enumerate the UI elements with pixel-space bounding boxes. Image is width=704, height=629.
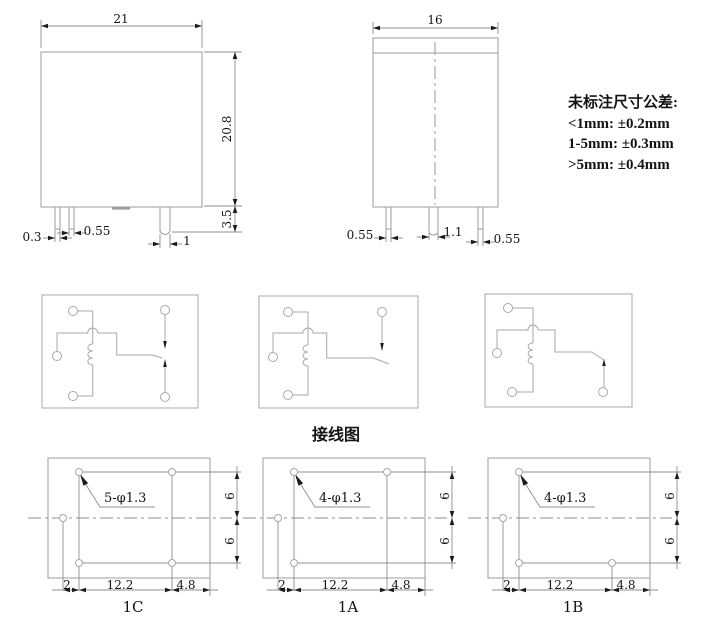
side-dim-6-lower-1b: 6: [663, 531, 677, 551]
side-view-drawing: [373, 22, 498, 246]
mounting-holes: [500, 469, 616, 567]
wiring-diagram-caption: 接线图: [300, 421, 372, 445]
wiring-diagram-1b: [485, 294, 632, 407]
side-dim-6-upper-1c: 6: [223, 486, 237, 506]
leader-arrow: [520, 474, 528, 486]
side-pin-dim-mid-label: 1.1: [437, 225, 469, 239]
pin-terminals: [493, 304, 608, 397]
side-dim-6-upper-1b: 6: [663, 486, 677, 506]
pin-terminals: [53, 306, 170, 402]
armature-wire: [57, 328, 162, 358]
armature-wire: [497, 325, 604, 360]
no-contact: [380, 343, 384, 351]
pcb-layout-1a: [243, 458, 456, 596]
front-width-dim-label: 21: [101, 12, 141, 26]
relay-body-front: [41, 52, 202, 207]
bottom-dim-4.8-1a: 4.8: [382, 578, 420, 592]
tolerance-note: 未标注尺寸公差: <1mm: ±0.2mm 1-5mm: ±0.3mm >5mm…: [568, 93, 704, 175]
bottom-dim-4.8-1c: 4.8: [167, 578, 205, 592]
side-dim-6-lower-1a: 6: [438, 531, 452, 551]
wiring-diagram-1c: [42, 295, 198, 408]
pcb-layout-1c: [28, 458, 241, 596]
front-pin-dim-1-label: 1: [178, 234, 196, 248]
mounting-holes: [60, 469, 176, 567]
layout-label-1b: 1B: [543, 598, 603, 616]
front-view-dimensions: [41, 20, 242, 248]
bottom-dim-4.8-1b: 4.8: [607, 578, 645, 592]
hole-note-1b: 4-φ1.3: [544, 491, 586, 506]
front-pin-dim-0.3-label: 0.3: [16, 230, 48, 244]
bottom-dim-12.2-1a: 12.2: [315, 578, 355, 592]
side-dim-6-lower-1c: 6: [223, 531, 237, 551]
coil-symbol: [293, 345, 309, 395]
leader-arrow: [295, 474, 303, 486]
coil-symbol: [517, 343, 534, 392]
pcb-layout-1b: [468, 458, 681, 596]
bottom-dim-2-1a: 2: [272, 578, 292, 592]
side-pin-dim-left-label: 0.55: [341, 228, 379, 242]
bottom-dim-12.2-1c: 12.2: [100, 578, 140, 592]
tolerance-rule: 1-5mm: ±0.3mm: [568, 134, 704, 155]
front-view-drawing: [41, 20, 242, 248]
front-height-dim-label: 20.8: [220, 107, 234, 151]
side-view-dimensions: [373, 22, 498, 246]
side-pin-dim-right-label: 0.55: [487, 232, 527, 246]
bottom-dim-2-1b: 2: [497, 578, 517, 592]
relay-drawing-sheet: 21 20.8 3.5 0.3 0.55 1 16 0.55 1.1 0.55 …: [0, 0, 704, 629]
tolerance-note-title: 未标注尺寸公差:: [568, 93, 704, 114]
hole-note-1c: 5-φ1.3: [104, 491, 146, 506]
bottom-dim-2-1c: 2: [57, 578, 77, 592]
front-pin-length-dim-label: 3.5: [220, 197, 234, 241]
pin-terminals: [269, 308, 387, 400]
layout-label-1a: 1A: [318, 598, 378, 616]
coil-symbol: [78, 344, 93, 396]
leader-arrow: [80, 474, 88, 486]
tolerance-rule: >5mm: ±0.4mm: [568, 155, 704, 176]
nc-contact: [602, 359, 606, 366]
bottom-dim-12.2-1b: 12.2: [540, 578, 580, 592]
no-contact: [163, 359, 167, 367]
relay-body-side: [373, 38, 498, 207]
nc-contact: [163, 341, 167, 349]
mounting-holes: [275, 469, 391, 567]
layout-label-1c: 1C: [103, 598, 163, 616]
side-dim-6-upper-1a: 6: [438, 486, 452, 506]
front-pin-dim-0.55-label: 0.55: [80, 224, 114, 238]
wiring-diagram-1a: [259, 296, 418, 408]
side-width-dim-label: 16: [415, 13, 455, 27]
hole-note-1a: 4-φ1.3: [319, 491, 361, 506]
tolerance-rule: <1mm: ±0.2mm: [568, 114, 704, 135]
armature-wire: [273, 328, 389, 364]
